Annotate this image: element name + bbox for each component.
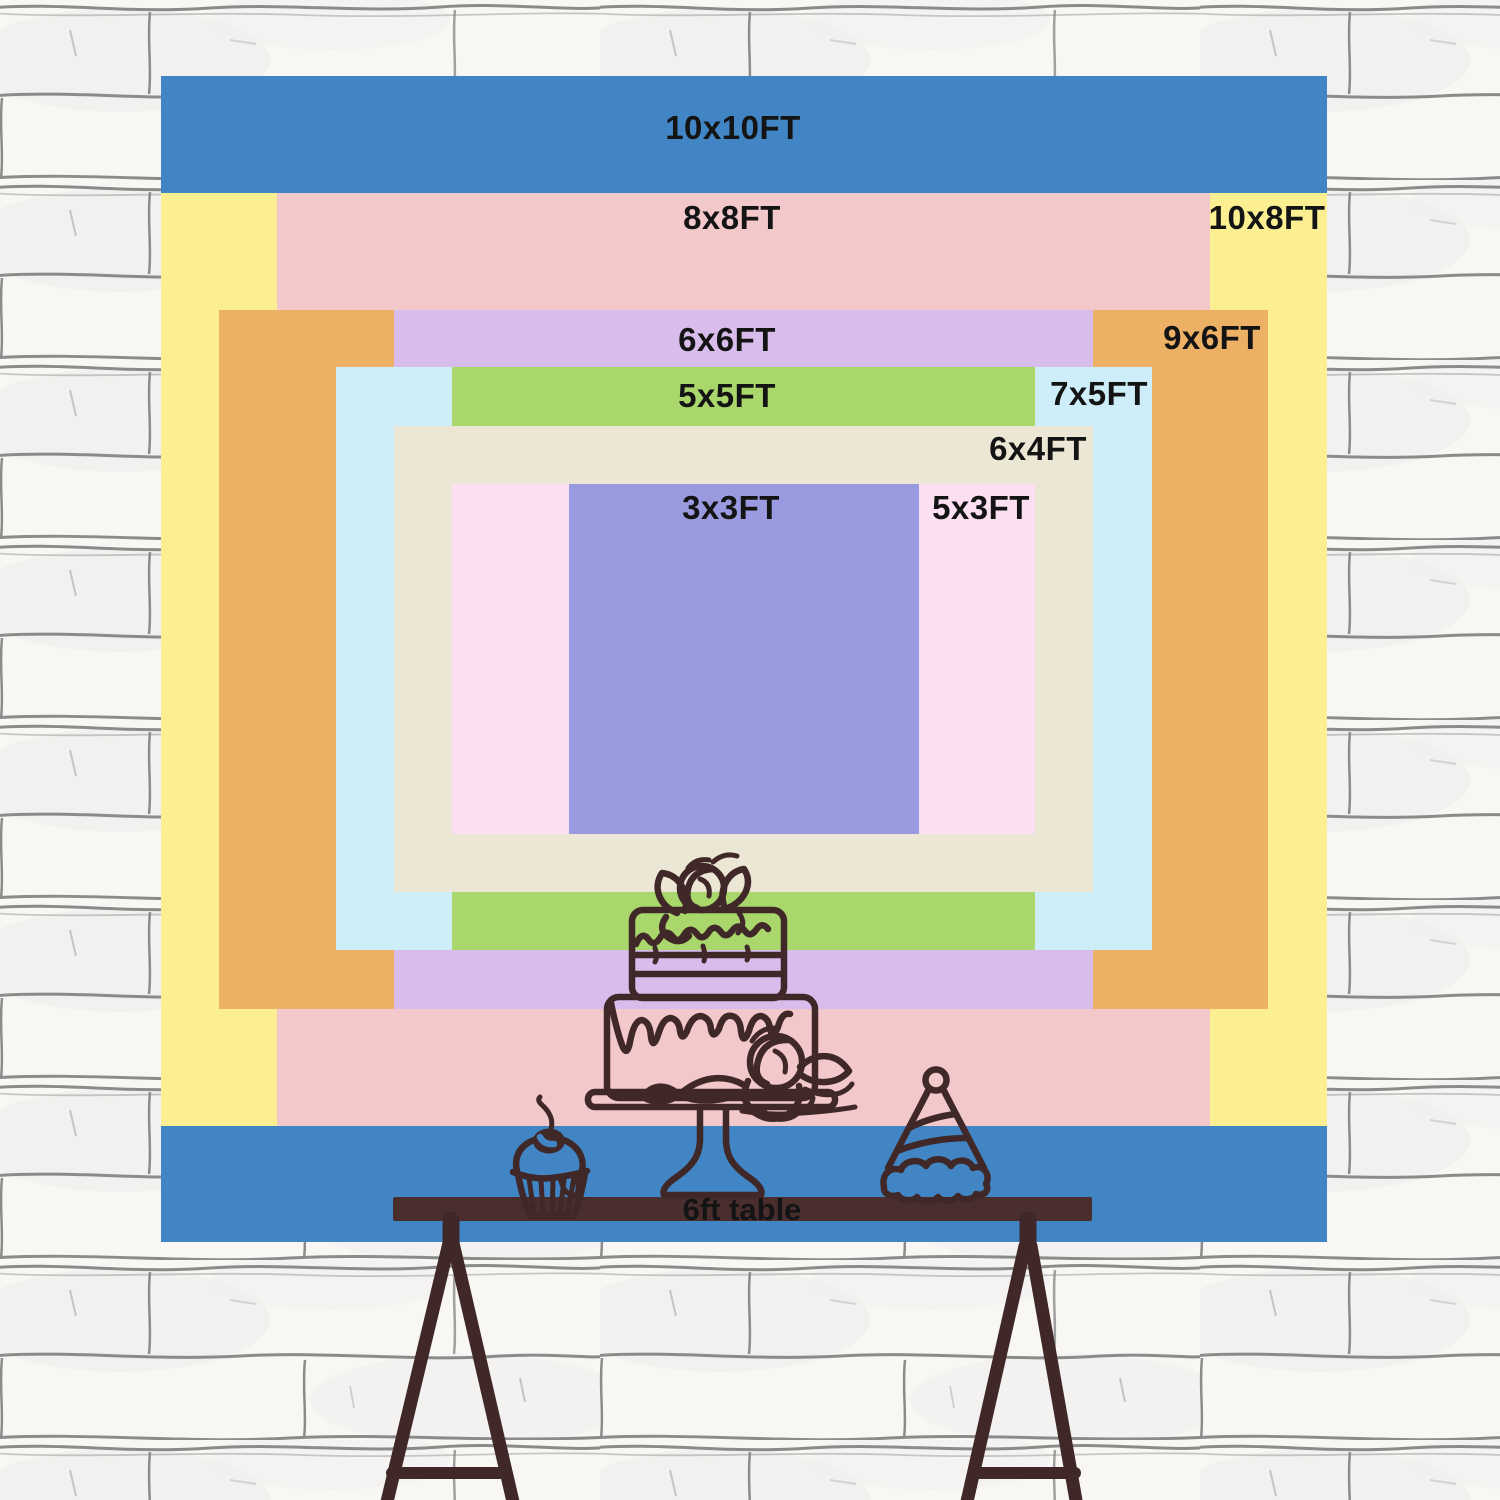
table-label: 6ft table (683, 1192, 802, 1228)
backdrop-rect-3x3ft (569, 484, 919, 834)
backdrop-size-chart: 10x10FT 10x8FT 8x8FT 9x6FT 6x6FT 7x5FT 5… (0, 0, 1500, 1500)
